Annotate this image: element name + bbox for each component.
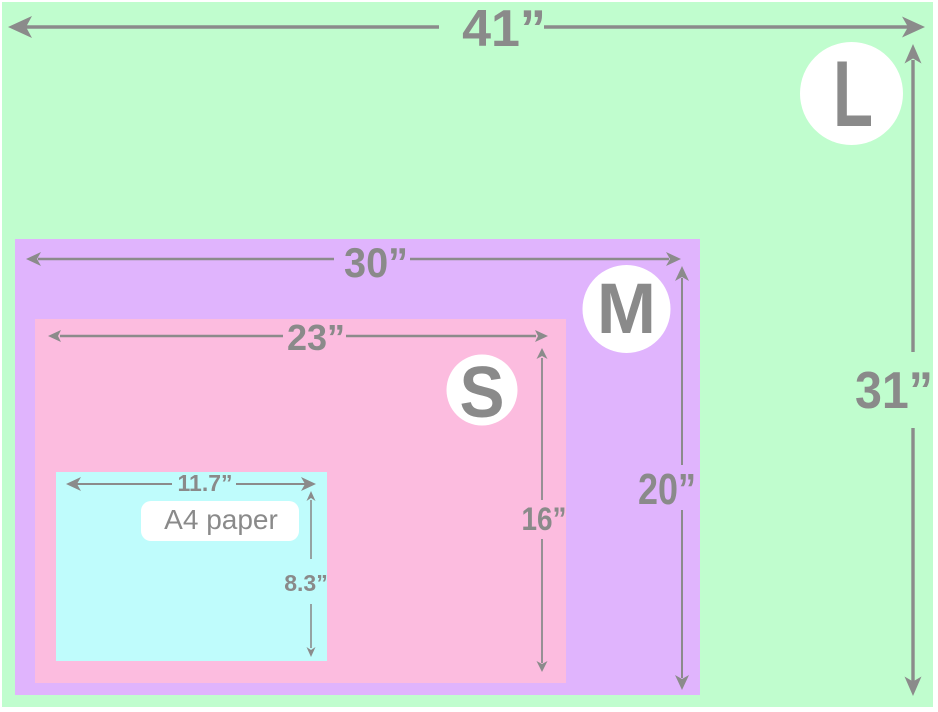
svg-text:L: L [833,41,873,146]
svg-text:41”: 41” [462,0,546,58]
svg-text:23”: 23” [287,317,345,358]
svg-text:31”: 31” [855,362,933,420]
svg-text:S: S [460,353,505,433]
svg-text:M: M [597,270,656,349]
svg-text:30”: 30” [344,239,408,286]
svg-text:11.7”: 11.7” [178,470,233,496]
svg-text:20”: 20” [638,465,696,514]
svg-text:16”: 16” [522,501,567,537]
svg-text:8.3”: 8.3” [284,570,327,596]
svg-text:A4 paper: A4 paper [164,504,278,535]
